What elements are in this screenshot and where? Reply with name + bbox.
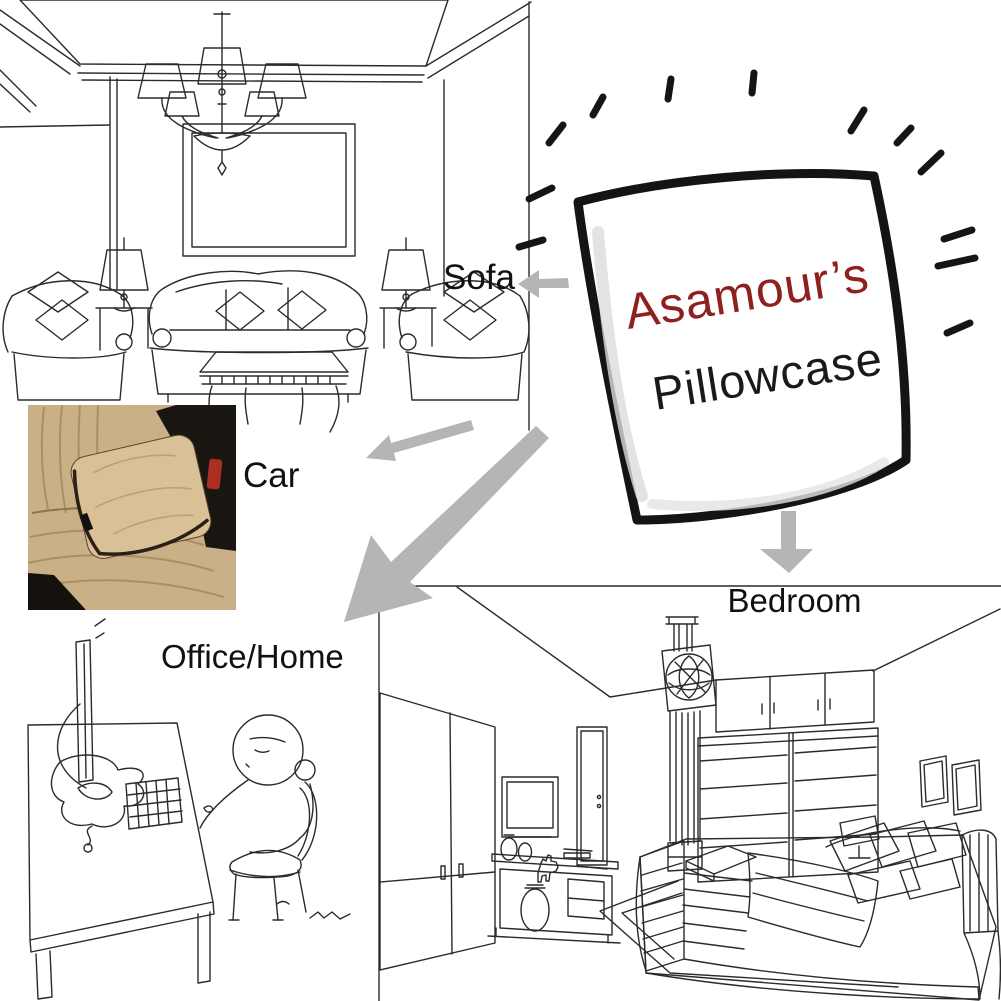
side-tables bbox=[96, 308, 436, 350]
car-scene-label: Car bbox=[243, 456, 299, 496]
wall-frames bbox=[920, 756, 981, 815]
chandelier bbox=[138, 12, 306, 175]
office-scene-label: Office/Home bbox=[161, 638, 344, 676]
person-sitting bbox=[200, 715, 315, 853]
wardrobe-tall bbox=[380, 693, 495, 970]
sofa-scene-label: Sofa bbox=[443, 258, 515, 298]
ground-marks bbox=[277, 902, 350, 920]
door bbox=[577, 727, 607, 869]
desk bbox=[28, 723, 214, 999]
armchair-left bbox=[3, 272, 133, 400]
product-name: Pillowcase bbox=[608, 324, 928, 428]
living-room-illustration bbox=[0, 0, 534, 446]
arrow-down-bedroom-icon bbox=[760, 511, 813, 573]
wall-picture-frame bbox=[183, 124, 355, 256]
pillowcase-usage-infographic: Asamour’s Pillowcase Sofa Car Office/Hom… bbox=[0, 0, 1001, 1001]
chair bbox=[229, 782, 317, 920]
brand-name: Asamour’s bbox=[589, 240, 904, 346]
ceiling-fan-unit bbox=[662, 617, 716, 871]
keyboard bbox=[126, 778, 182, 829]
table-lamp-left bbox=[100, 238, 148, 311]
tv-stand bbox=[488, 835, 620, 943]
bed bbox=[636, 816, 1000, 1000]
tv bbox=[502, 777, 558, 837]
overhead-cabinets bbox=[716, 670, 874, 732]
monitor bbox=[58, 619, 106, 788]
bedroom-scene-label: Bedroom bbox=[722, 582, 867, 620]
ceiling bbox=[0, 0, 531, 82]
bedroom-illustration bbox=[378, 585, 1001, 1001]
car-seat-photo bbox=[28, 405, 236, 610]
